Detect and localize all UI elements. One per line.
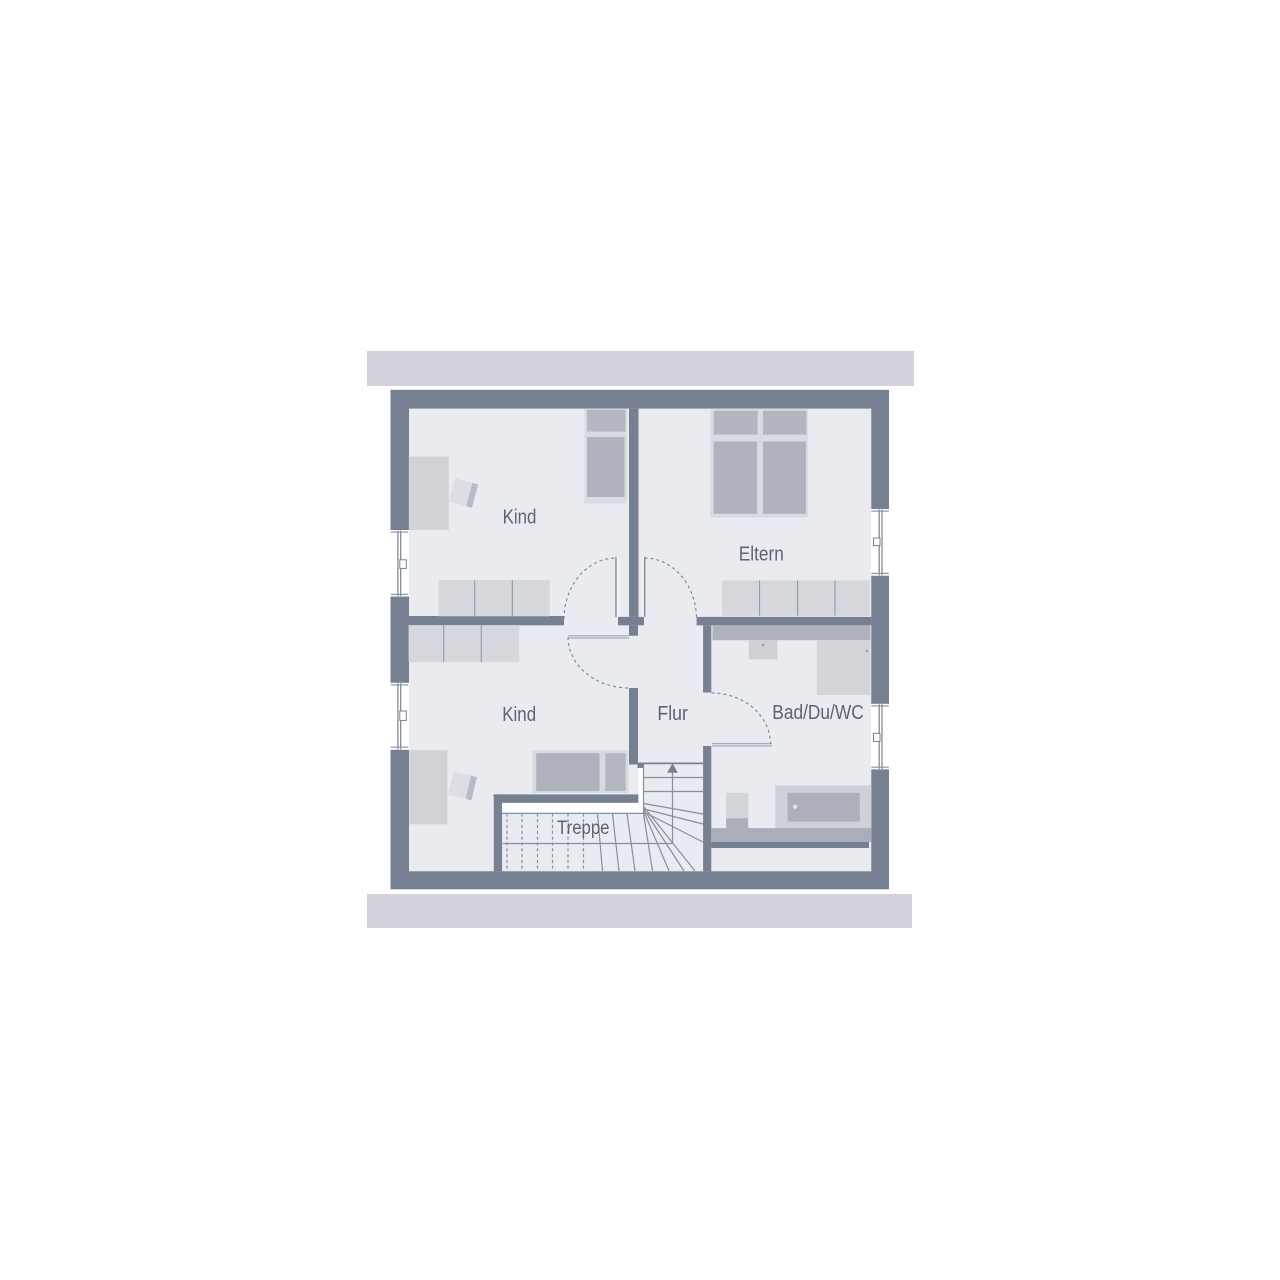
svg-text:Flur: Flur (657, 703, 688, 725)
svg-text:Bad/Du/WC: Bad/Du/WC (772, 702, 863, 724)
svg-text:Kind: Kind (503, 507, 537, 529)
svg-text:Eltern: Eltern (739, 543, 784, 565)
svg-text:Treppe: Treppe (557, 817, 610, 839)
svg-text:Kind: Kind (502, 704, 536, 726)
